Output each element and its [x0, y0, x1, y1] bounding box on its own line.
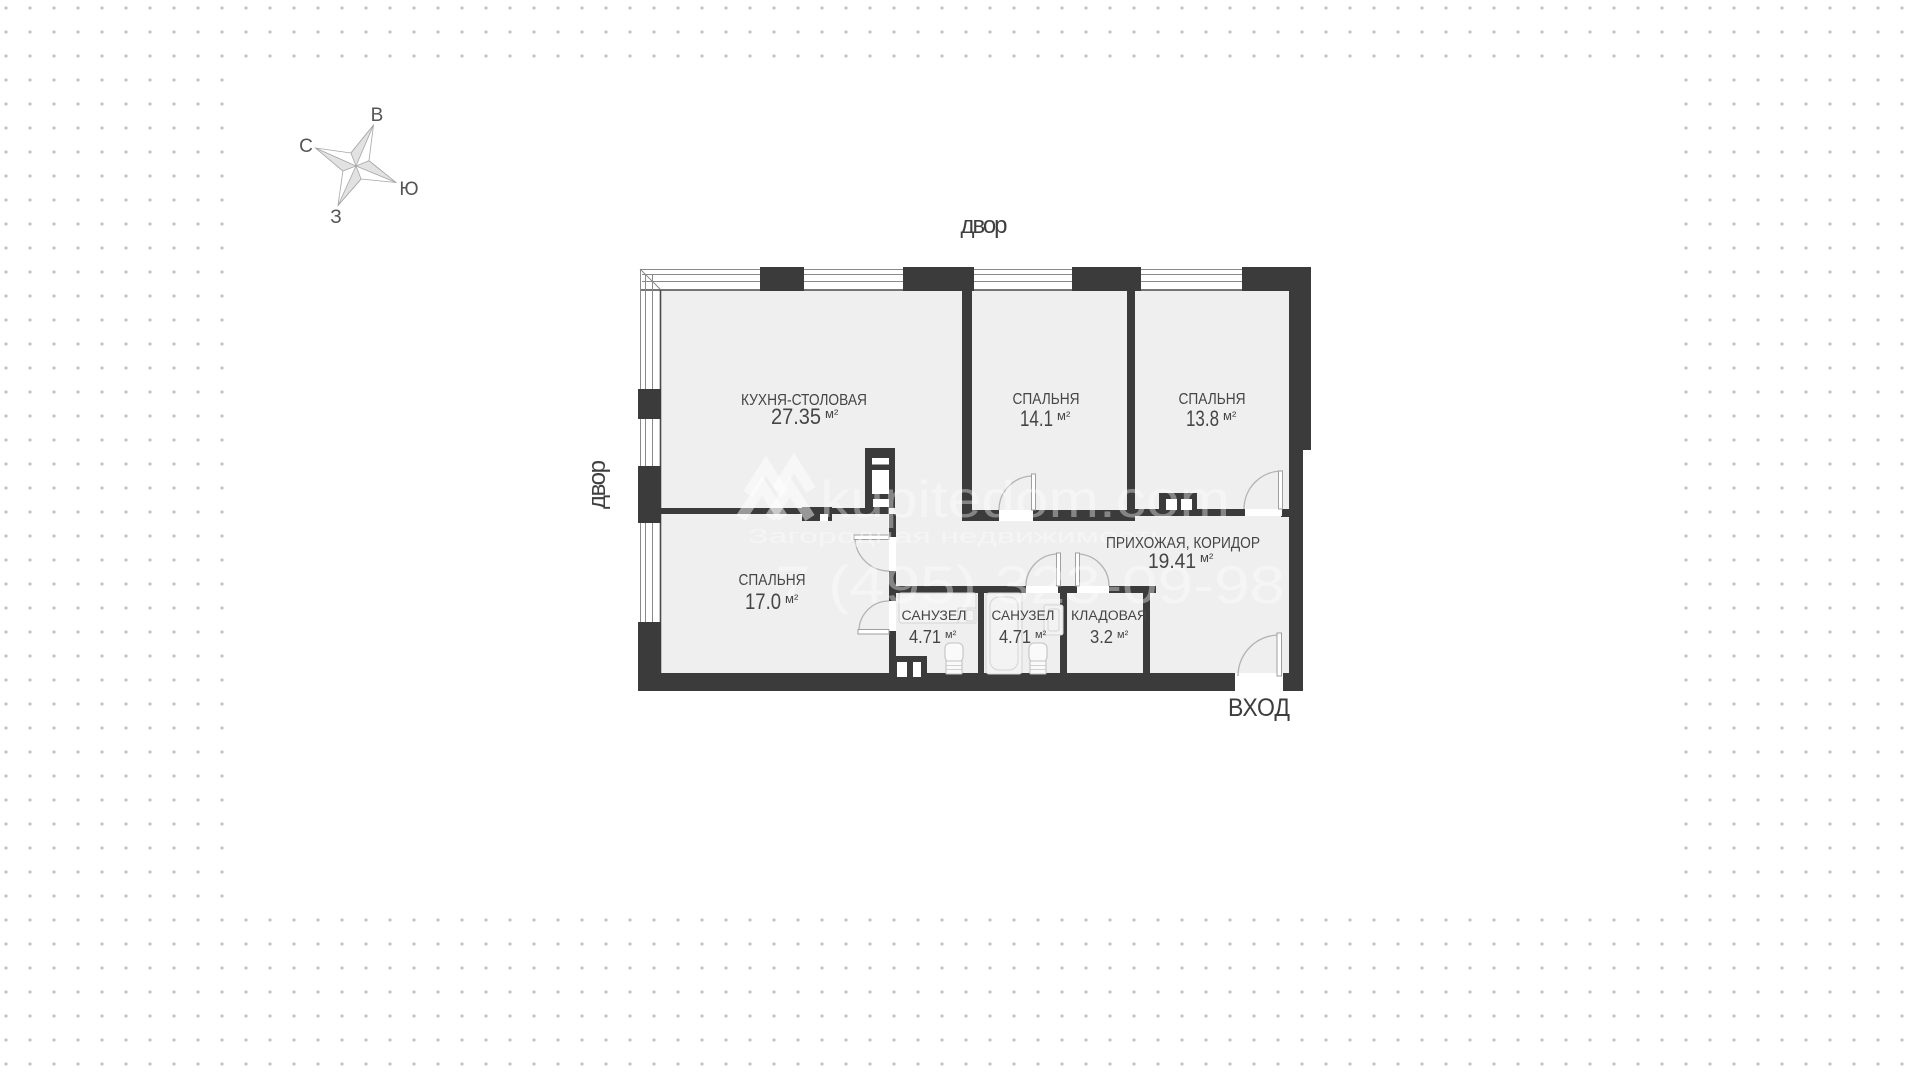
svg-text:СПАЛЬНЯ: СПАЛЬНЯ — [739, 572, 806, 589]
svg-text:м²: м² — [785, 591, 799, 606]
svg-text:КЛАДОВАЯ: КЛАДОВАЯ — [1071, 608, 1147, 623]
svg-text:3.2: 3.2 — [1090, 627, 1113, 647]
svg-text:Ю: Ю — [399, 179, 418, 200]
svg-text:м²: м² — [1117, 629, 1129, 641]
svg-text:САНУЗЕЛ: САНУЗЕЛ — [992, 608, 1055, 623]
svg-text:З: З — [330, 207, 341, 228]
svg-text:САНУЗЕЛ: САНУЗЕЛ — [902, 608, 967, 623]
svg-text:4.71: 4.71 — [999, 627, 1031, 647]
svg-text:двор: двор — [584, 460, 611, 509]
svg-text:14.1: 14.1 — [1020, 406, 1053, 431]
svg-text:двор: двор — [961, 212, 1008, 239]
svg-text:27.35: 27.35 — [771, 404, 821, 429]
svg-text:19.41: 19.41 — [1148, 550, 1196, 573]
svg-text:Загородная недвижимость: Загородная недвижимость — [748, 526, 1168, 548]
svg-text:17.0: 17.0 — [745, 589, 781, 614]
svg-text:м²: м² — [1035, 629, 1047, 641]
svg-text:13.8: 13.8 — [1186, 406, 1219, 431]
svg-text:м²: м² — [1057, 408, 1071, 423]
svg-text:м²: м² — [945, 629, 957, 641]
svg-text:В: В — [371, 105, 384, 126]
svg-text:kupitedom.com: kupitedom.com — [820, 471, 1230, 529]
svg-text:м²: м² — [1200, 550, 1214, 565]
svg-text:4.71: 4.71 — [909, 627, 941, 647]
svg-text:С: С — [299, 136, 313, 157]
svg-text:м²: м² — [1223, 408, 1237, 423]
svg-text:м²: м² — [825, 406, 839, 421]
svg-text:ВХОД: ВХОД — [1228, 694, 1290, 722]
